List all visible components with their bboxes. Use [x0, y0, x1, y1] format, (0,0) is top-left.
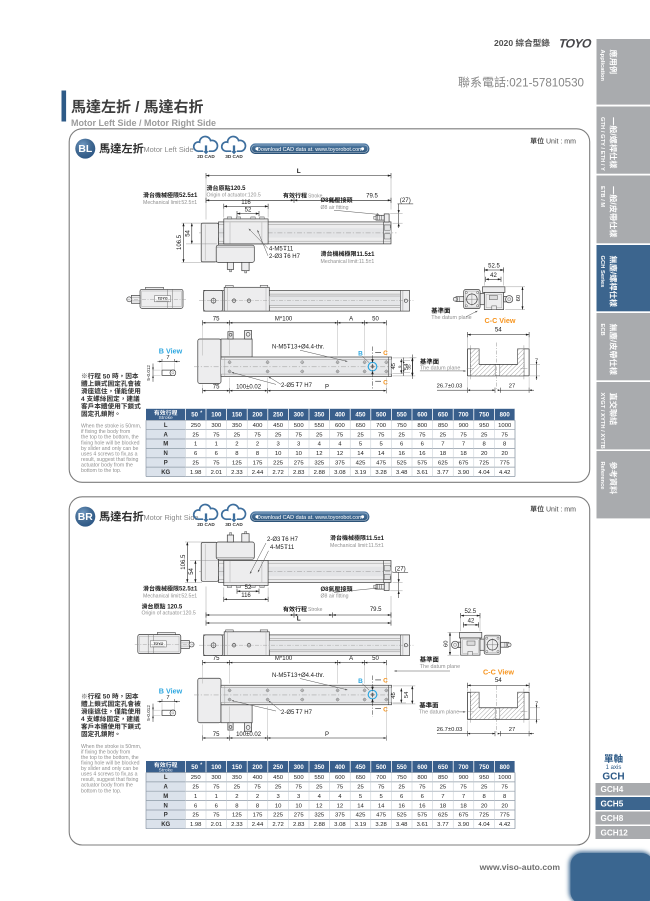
svg-text:25: 25 — [192, 785, 199, 791]
svg-text:ECB: ECB — [599, 324, 605, 336]
svg-text:1: 1 — [194, 794, 197, 800]
svg-text:50: 50 — [372, 656, 379, 662]
svg-text:150: 150 — [232, 764, 243, 771]
svg-text:52.5: 52.5 — [464, 609, 476, 615]
svg-text:4: 4 — [81, 396, 85, 403]
svg-text:L: L — [164, 775, 168, 781]
svg-text:The datum plane: The datum plane — [420, 664, 460, 670]
svg-text:*: * — [200, 410, 202, 416]
svg-text:GCH Series: GCH Series — [599, 256, 605, 288]
svg-text:750: 750 — [479, 412, 490, 419]
svg-text:3.90: 3.90 — [458, 822, 470, 828]
svg-text:M: M — [163, 442, 168, 448]
svg-text:100: 100 — [211, 412, 222, 419]
svg-text:C: C — [383, 379, 388, 386]
svg-text:L: L — [164, 423, 168, 429]
svg-text:300: 300 — [294, 764, 305, 771]
svg-text:2.72: 2.72 — [272, 470, 283, 476]
svg-text:675: 675 — [459, 813, 470, 819]
svg-text:45: 45 — [391, 692, 397, 698]
svg-text:BR: BR — [78, 512, 94, 523]
svg-text:2.44: 2.44 — [252, 470, 264, 476]
svg-text:C-C View: C-C View — [483, 667, 514, 676]
svg-text:50: 50 — [191, 764, 198, 771]
svg-text:35: 35 — [406, 364, 411, 370]
svg-text:5-0.012: 5-0.012 — [146, 705, 151, 721]
svg-text:450: 450 — [355, 764, 366, 771]
svg-text:10: 10 — [295, 803, 302, 809]
svg-text:25: 25 — [398, 432, 405, 438]
svg-text:75: 75 — [213, 385, 220, 391]
svg-text:4.42: 4.42 — [499, 470, 510, 476]
svg-text:700: 700 — [376, 423, 387, 429]
svg-text:3.28: 3.28 — [375, 470, 387, 476]
svg-text:14: 14 — [378, 451, 385, 457]
svg-text:800: 800 — [417, 423, 428, 429]
svg-text:3.48: 3.48 — [396, 822, 408, 828]
svg-text::021-57810530: :021-57810530 — [506, 77, 584, 90]
svg-text:120.5: 120.5 — [167, 605, 183, 611]
svg-text:1 axis: 1 axis — [606, 765, 622, 771]
svg-text:200: 200 — [252, 412, 263, 419]
svg-text:550: 550 — [397, 764, 408, 771]
svg-text:Mechanical limit:11.5±1: Mechanical limit:11.5±1 — [330, 543, 384, 549]
svg-text:4-M5: 4-M5 — [269, 247, 283, 253]
svg-text:625: 625 — [438, 461, 449, 467]
svg-text:A: A — [164, 785, 169, 791]
svg-text:25: 25 — [234, 785, 241, 791]
svg-text:600: 600 — [417, 412, 428, 419]
svg-text:106.5: 106.5 — [177, 234, 183, 250]
svg-text:12: 12 — [337, 803, 344, 809]
svg-text:L: L — [297, 168, 301, 175]
svg-text:500: 500 — [294, 775, 305, 781]
svg-text:7 H7: 7 H7 — [299, 710, 312, 716]
svg-text:Mechanical limit:52.5±1: Mechanical limit:52.5±1 — [143, 200, 197, 206]
svg-text:3.08: 3.08 — [334, 822, 346, 828]
svg-text:60: 60 — [444, 641, 450, 647]
svg-text:18: 18 — [460, 803, 467, 809]
svg-text:27: 27 — [509, 727, 515, 733]
svg-text:20: 20 — [501, 451, 508, 457]
svg-text:2D CAD: 2D CAD — [197, 154, 215, 159]
svg-text:375: 375 — [335, 461, 346, 467]
svg-text:25: 25 — [316, 432, 323, 438]
svg-text:575: 575 — [417, 813, 428, 819]
svg-text:75: 75 — [295, 785, 302, 791]
svg-text:3.19: 3.19 — [355, 822, 366, 828]
svg-text:600: 600 — [335, 775, 346, 781]
svg-text:400: 400 — [335, 764, 346, 771]
svg-text:60: 60 — [516, 295, 522, 301]
svg-text:14: 14 — [357, 451, 364, 457]
svg-text:750: 750 — [479, 764, 490, 771]
svg-text:A: A — [349, 656, 353, 662]
svg-text:B View: B View — [159, 687, 183, 696]
svg-text:175: 175 — [253, 461, 264, 467]
svg-text:52.5±1: 52.5±1 — [179, 193, 198, 199]
svg-text:600: 600 — [417, 764, 428, 771]
svg-text:400: 400 — [253, 775, 264, 781]
svg-text:bottom to the top.: bottom to the top. — [81, 468, 121, 474]
svg-text:11.5±1: 11.5±1 — [366, 536, 385, 542]
svg-text:550: 550 — [397, 412, 408, 419]
svg-text:(27): (27) — [395, 565, 406, 572]
svg-text:650: 650 — [356, 423, 367, 429]
svg-text:10: 10 — [275, 451, 282, 457]
svg-text:4.04: 4.04 — [478, 822, 490, 828]
svg-text:1000: 1000 — [498, 423, 512, 429]
svg-text:700: 700 — [458, 764, 469, 771]
svg-text:2: 2 — [256, 442, 259, 448]
svg-text:2-Ø3: 2-Ø3 — [267, 537, 281, 543]
svg-text:42: 42 — [468, 619, 475, 625]
svg-text:250: 250 — [191, 423, 202, 429]
svg-text:725: 725 — [479, 813, 490, 819]
svg-text:M*100: M*100 — [275, 316, 293, 322]
svg-text:425: 425 — [356, 461, 367, 467]
svg-text:1.98: 1.98 — [190, 822, 202, 828]
svg-text:675: 675 — [459, 461, 470, 467]
svg-text:N: N — [164, 451, 168, 457]
svg-text:Ø8 air fitting: Ø8 air fitting — [321, 205, 349, 211]
svg-text:600: 600 — [335, 423, 346, 429]
svg-text:GCH8: GCH8 — [601, 814, 624, 823]
svg-text:7: 7 — [462, 794, 465, 800]
svg-text:5-0.012: 5-0.012 — [146, 365, 151, 381]
svg-text:50: 50 — [191, 412, 198, 419]
svg-text:18: 18 — [460, 451, 467, 457]
svg-text:250: 250 — [191, 775, 202, 781]
svg-text:325: 325 — [314, 813, 325, 819]
svg-text:54: 54 — [189, 567, 195, 574]
svg-text:14: 14 — [357, 803, 364, 809]
svg-text:L: L — [297, 616, 301, 623]
svg-text:800: 800 — [500, 764, 511, 771]
svg-text:75: 75 — [213, 316, 220, 322]
svg-text:650: 650 — [438, 412, 449, 419]
svg-text:2-Ø5: 2-Ø5 — [281, 383, 295, 389]
svg-text:2.33: 2.33 — [231, 822, 243, 828]
svg-text:2.83: 2.83 — [293, 470, 305, 476]
svg-text:150: 150 — [232, 412, 243, 419]
svg-text:475: 475 — [376, 461, 387, 467]
svg-text:750: 750 — [397, 423, 408, 429]
svg-text:50: 50 — [372, 316, 379, 322]
svg-text:7: 7 — [166, 355, 169, 361]
svg-text:N: N — [164, 803, 168, 809]
svg-text:25: 25 — [192, 813, 199, 819]
svg-text:700: 700 — [458, 412, 469, 419]
svg-text:C: C — [383, 707, 388, 714]
svg-text:11: 11 — [288, 545, 295, 551]
svg-text:3.77: 3.77 — [437, 822, 448, 828]
svg-text:475: 475 — [376, 813, 387, 819]
svg-text:1: 1 — [215, 442, 218, 448]
svg-text:850: 850 — [438, 423, 449, 429]
svg-text:2-Ø3: 2-Ø3 — [269, 254, 283, 260]
svg-text:7: 7 — [166, 695, 169, 701]
svg-text:2.83: 2.83 — [293, 822, 305, 828]
svg-text:75: 75 — [213, 813, 220, 819]
svg-text:225: 225 — [273, 461, 284, 467]
svg-text:www.viso-auto.com: www.viso-auto.com — [479, 862, 561, 872]
svg-text:2-Ø5: 2-Ø5 — [281, 710, 295, 716]
svg-text:2: 2 — [235, 442, 238, 448]
svg-text:200: 200 — [252, 764, 263, 771]
svg-text:7: 7 — [441, 442, 444, 448]
svg-text:bottom to the top.: bottom to the top. — [81, 788, 121, 794]
svg-text:20: 20 — [481, 803, 488, 809]
svg-text:425: 425 — [356, 813, 367, 819]
svg-text:25: 25 — [357, 785, 364, 791]
svg-text:106.5: 106.5 — [181, 554, 187, 570]
svg-text:2: 2 — [256, 794, 259, 800]
svg-text:1: 1 — [215, 794, 218, 800]
svg-text:16: 16 — [398, 451, 405, 457]
svg-text:525: 525 — [397, 461, 408, 467]
svg-text:45: 45 — [391, 363, 397, 369]
svg-text:54: 54 — [495, 326, 502, 333]
svg-text:116: 116 — [241, 593, 251, 599]
svg-text:775: 775 — [500, 813, 511, 819]
svg-text:M: M — [163, 794, 168, 800]
svg-text:2.88: 2.88 — [314, 470, 326, 476]
svg-text:2.01: 2.01 — [211, 470, 222, 476]
svg-text:ETB / M: ETB / M — [599, 186, 605, 207]
svg-text:25: 25 — [398, 785, 405, 791]
svg-text:75: 75 — [460, 785, 467, 791]
svg-text:18: 18 — [440, 803, 447, 809]
svg-text:75: 75 — [337, 785, 344, 791]
svg-text:550: 550 — [314, 775, 325, 781]
svg-text:1: 1 — [194, 442, 197, 448]
svg-text:4.04: 4.04 — [478, 470, 490, 476]
svg-text:Mechanical limit:52.5±1: Mechanical limit:52.5±1 — [143, 594, 197, 600]
svg-text:54: 54 — [495, 677, 502, 684]
svg-text:3.61: 3.61 — [417, 470, 428, 476]
svg-text:M*100: M*100 — [275, 656, 293, 662]
svg-text:575: 575 — [417, 461, 428, 467]
svg-text:3.77: 3.77 — [437, 470, 448, 476]
svg-text:400: 400 — [253, 423, 264, 429]
svg-text:850: 850 — [438, 775, 449, 781]
svg-text:75: 75 — [378, 432, 385, 438]
svg-text:450: 450 — [273, 423, 284, 429]
svg-text:11.5±1: 11.5±1 — [357, 252, 376, 258]
svg-text:3.08: 3.08 — [334, 470, 346, 476]
svg-text:(27): (27) — [400, 197, 411, 204]
svg-text:25: 25 — [357, 432, 364, 438]
svg-text:75: 75 — [213, 785, 220, 791]
svg-text:26.7±0.03: 26.7±0.03 — [437, 727, 463, 733]
svg-text:300: 300 — [211, 423, 222, 429]
svg-text:250: 250 — [273, 412, 284, 419]
svg-text:P: P — [164, 461, 168, 467]
svg-text:79.5: 79.5 — [370, 607, 382, 613]
svg-text:525: 525 — [397, 813, 408, 819]
svg-text:50: 50 — [103, 694, 111, 701]
svg-text:800: 800 — [417, 775, 428, 781]
svg-text:250: 250 — [273, 764, 284, 771]
svg-text:2D CAD: 2D CAD — [197, 522, 215, 527]
svg-text:54: 54 — [186, 229, 192, 236]
svg-text:27: 27 — [509, 384, 515, 390]
svg-text:The datum plane: The datum plane — [420, 365, 460, 371]
svg-text:B View: B View — [159, 346, 183, 355]
svg-text:725: 725 — [479, 461, 490, 467]
svg-text:75: 75 — [419, 432, 426, 438]
svg-text:75: 75 — [254, 785, 261, 791]
svg-text:2.72: 2.72 — [272, 822, 283, 828]
svg-text:225: 225 — [273, 813, 284, 819]
svg-text:950: 950 — [479, 423, 490, 429]
svg-text:52: 52 — [245, 585, 252, 591]
svg-text:Motor Left Side / Motor Right: Motor Left Side / Motor Right Side — [71, 118, 216, 128]
svg-text:52: 52 — [245, 207, 252, 213]
svg-text:75: 75 — [460, 432, 467, 438]
svg-text:26.7±0.03: 26.7±0.03 — [437, 384, 463, 390]
svg-text:Origin of actuator:120.5: Origin of actuator:120.5 — [142, 611, 196, 617]
svg-text:6 H7: 6 H7 — [285, 537, 298, 543]
svg-text:25: 25 — [481, 785, 488, 791]
svg-text:900: 900 — [459, 775, 470, 781]
svg-text:500: 500 — [294, 423, 305, 429]
svg-text:3.28: 3.28 — [375, 822, 387, 828]
svg-text:2020: 2020 — [494, 38, 513, 48]
svg-text:400: 400 — [335, 412, 346, 419]
svg-text:16: 16 — [419, 451, 426, 457]
svg-text:75: 75 — [501, 432, 508, 438]
svg-text:14: 14 — [378, 803, 385, 809]
svg-text:75: 75 — [213, 461, 220, 467]
svg-text:3D CAD: 3D CAD — [225, 522, 243, 527]
svg-text:C: C — [383, 677, 388, 684]
svg-text:100±0.02: 100±0.02 — [236, 732, 262, 738]
svg-text:52.5±1: 52.5±1 — [179, 587, 198, 593]
svg-text:700: 700 — [376, 775, 387, 781]
svg-text:2.44: 2.44 — [252, 822, 264, 828]
svg-text:Stroke: Stroke — [308, 607, 323, 613]
svg-text:*: * — [200, 763, 202, 769]
svg-text:4-M5: 4-M5 — [270, 545, 284, 551]
svg-text:300: 300 — [294, 412, 305, 419]
svg-text:25: 25 — [481, 432, 488, 438]
svg-text:25: 25 — [275, 785, 282, 791]
svg-text:N-M5: N-M5 — [272, 673, 287, 679]
svg-text:125: 125 — [232, 813, 243, 819]
svg-text:50: 50 — [103, 373, 111, 380]
svg-text:275: 275 — [294, 813, 305, 819]
svg-text:175: 175 — [253, 813, 264, 819]
svg-text:The datum plane: The datum plane — [431, 315, 471, 321]
svg-text:950: 950 — [479, 775, 490, 781]
svg-text:75: 75 — [295, 432, 302, 438]
svg-text:P: P — [164, 813, 168, 819]
svg-text:Origin of actuator:120.5: Origin of actuator:120.5 — [207, 193, 261, 199]
svg-text:775: 775 — [500, 461, 511, 467]
svg-text:75: 75 — [337, 432, 344, 438]
svg-text:25: 25 — [192, 432, 199, 438]
svg-text:750: 750 — [397, 775, 408, 781]
svg-text:25: 25 — [192, 461, 199, 467]
svg-text:4: 4 — [81, 716, 85, 723]
svg-text:C-C View: C-C View — [484, 316, 515, 325]
svg-text:C: C — [383, 350, 388, 357]
svg-text:325: 325 — [314, 461, 325, 467]
svg-text:52.5: 52.5 — [488, 264, 500, 270]
svg-text:650: 650 — [438, 764, 449, 771]
svg-text:Ø8: Ø8 — [321, 587, 330, 593]
svg-text:1.98: 1.98 — [190, 470, 202, 476]
svg-text:TOYO: TOYO — [153, 642, 163, 646]
svg-text:300: 300 — [211, 775, 222, 781]
svg-text:116: 116 — [241, 200, 251, 206]
svg-text:350: 350 — [232, 775, 243, 781]
svg-text:25: 25 — [275, 432, 282, 438]
svg-text:GCH: GCH — [602, 772, 624, 783]
svg-text:KG: KG — [161, 470, 170, 476]
svg-text:20: 20 — [501, 803, 508, 809]
svg-text:12: 12 — [316, 803, 323, 809]
svg-text:100: 100 — [211, 764, 222, 771]
svg-text:2.33: 2.33 — [231, 470, 243, 476]
svg-text:625: 625 — [438, 813, 449, 819]
svg-text:Download CAD data at. www.toyo: Download CAD data at. www.toyorobot.com — [257, 147, 363, 153]
svg-text:75: 75 — [254, 432, 261, 438]
svg-text:12: 12 — [316, 451, 323, 457]
svg-text:KG: KG — [161, 822, 170, 828]
svg-text:9: 9 — [398, 365, 403, 368]
svg-text:75: 75 — [378, 785, 385, 791]
svg-text:6 H7: 6 H7 — [287, 254, 300, 260]
svg-text:Unit : mm: Unit : mm — [546, 138, 576, 145]
svg-text:42: 42 — [490, 273, 497, 279]
svg-text:A: A — [349, 316, 353, 322]
svg-text:10: 10 — [275, 803, 282, 809]
svg-text:7: 7 — [462, 442, 465, 448]
svg-text:7 H7: 7 H7 — [299, 383, 312, 389]
svg-text:16: 16 — [398, 803, 405, 809]
svg-text:800: 800 — [500, 412, 511, 419]
svg-text:1000: 1000 — [498, 775, 512, 781]
svg-text:75: 75 — [213, 432, 220, 438]
svg-text:2.88: 2.88 — [314, 822, 326, 828]
svg-text:P: P — [325, 385, 329, 391]
svg-text:650: 650 — [356, 775, 367, 781]
svg-text:Mechanical limit:11.5±1: Mechanical limit:11.5±1 — [321, 259, 375, 265]
svg-text:7: 7 — [441, 794, 444, 800]
svg-text:25: 25 — [234, 432, 241, 438]
svg-text:275: 275 — [294, 461, 305, 467]
svg-text:450: 450 — [355, 412, 366, 419]
svg-text:11: 11 — [287, 247, 294, 253]
svg-text:75: 75 — [419, 785, 426, 791]
svg-text:18: 18 — [440, 451, 447, 457]
svg-text:25: 25 — [316, 785, 323, 791]
svg-text:N-M5: N-M5 — [272, 345, 287, 351]
svg-text:P: P — [325, 732, 329, 738]
svg-text:75: 75 — [213, 732, 220, 738]
svg-text:13+Ø4.4-thr.: 13+Ø4.4-thr. — [291, 345, 325, 351]
svg-text:4.42: 4.42 — [499, 822, 510, 828]
svg-text:Ø8 air fitting: Ø8 air fitting — [321, 594, 349, 600]
svg-text:3D CAD: 3D CAD — [225, 154, 243, 159]
svg-text:500: 500 — [376, 412, 387, 419]
svg-text:75: 75 — [213, 656, 220, 662]
svg-text:Application: Application — [599, 50, 605, 82]
svg-text:350: 350 — [232, 423, 243, 429]
